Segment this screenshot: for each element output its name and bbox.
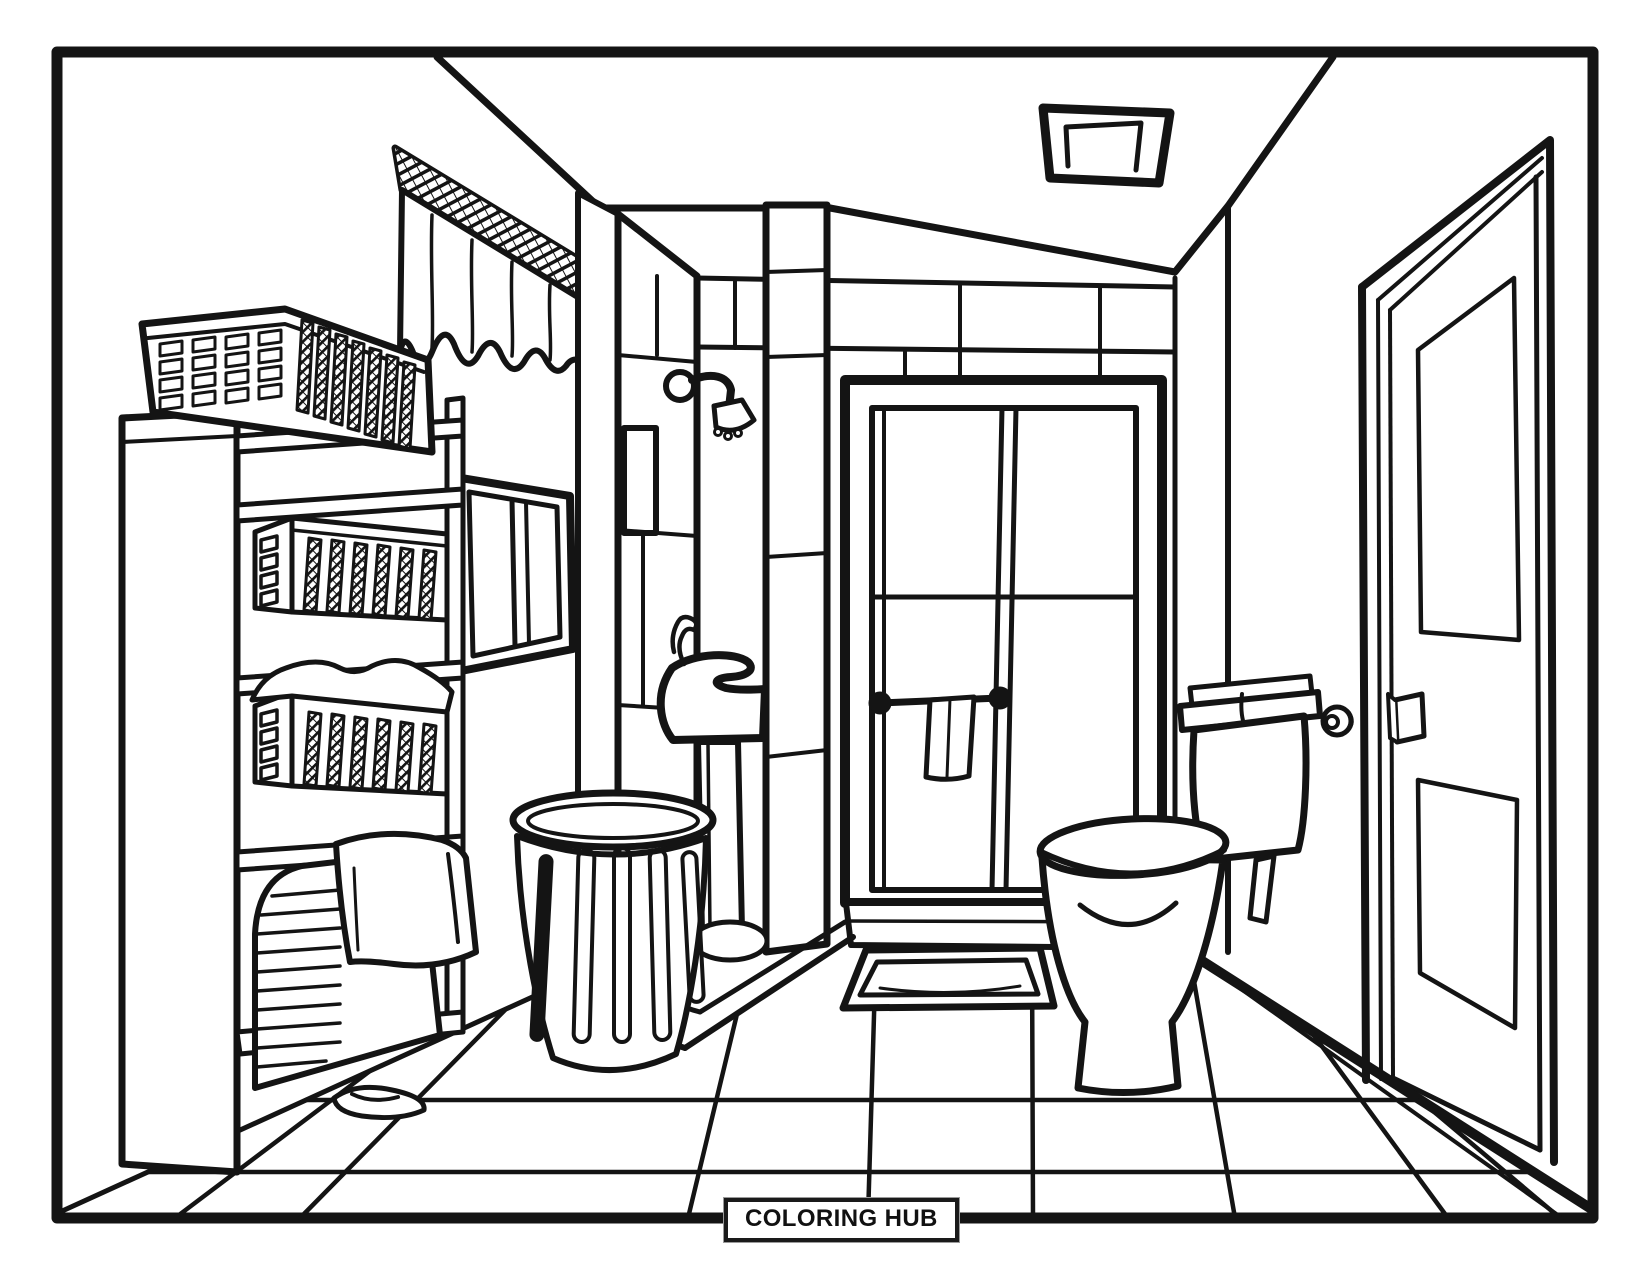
- ceiling-vent-icon: [1043, 108, 1170, 183]
- bathroom-line-art: [0, 0, 1650, 1275]
- hanging-towel: [926, 697, 974, 779]
- storage-basket-upper: [255, 518, 447, 620]
- shelf-unit: [122, 309, 476, 1172]
- bathroom-door: [1362, 140, 1554, 1162]
- tiled-pillar: [766, 205, 827, 952]
- brand-badge-label: COLORING HUB: [745, 1205, 938, 1232]
- storage-basket-lower: [252, 660, 452, 794]
- trash-can: [513, 793, 713, 1070]
- shelf-side-panel: [122, 412, 237, 1172]
- sink-base: [693, 922, 767, 960]
- bath-mat: [843, 948, 1054, 1008]
- brand-badge: COLORING HUB: [724, 1198, 959, 1242]
- wall-cabinet-window: [455, 477, 573, 671]
- toilet-paper-holder: [1323, 707, 1352, 735]
- coloring-page: COLORING HUB: [0, 0, 1650, 1275]
- door-handle: [1388, 694, 1424, 742]
